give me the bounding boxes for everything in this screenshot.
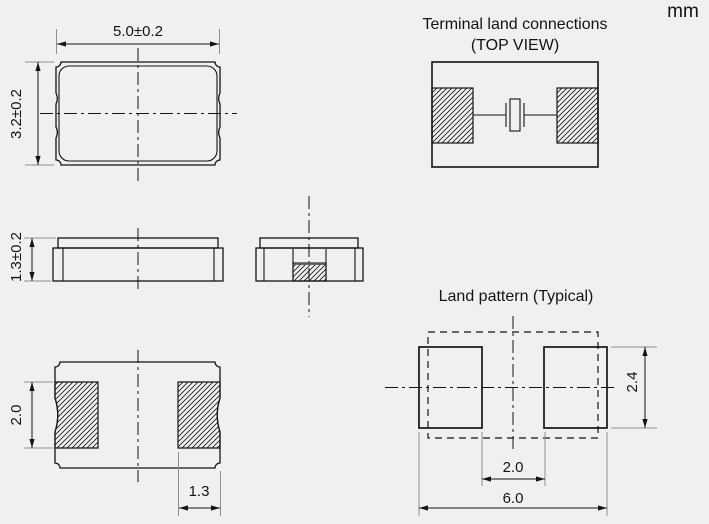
arrowhead-down	[642, 419, 647, 428]
bottom-view-pad-right	[178, 382, 220, 448]
tlc-terminal-pad-left	[432, 88, 473, 143]
arrowhead-up	[642, 347, 647, 356]
arrowhead-right	[211, 505, 220, 510]
tlc-terminal-pad-right	[557, 88, 598, 143]
terminal-land-connections-subtitle: (TOP VIEW)	[471, 37, 559, 54]
bottom-view-pad-width-dim-label: 1.3	[189, 483, 210, 500]
bottom-view-pad-length-dim-label: 2.0	[8, 405, 25, 426]
end-view-terminal-pad	[293, 263, 326, 281]
arrowhead-up	[29, 238, 34, 247]
arrowhead-down	[29, 439, 34, 448]
arrowhead-left	[419, 505, 428, 510]
arrowhead-up	[29, 382, 34, 391]
terminal-land-connections: Terminal land connections (TOP VIEW)	[423, 16, 608, 167]
bottom-view-pad-width-dimension: 1.3	[179, 452, 221, 516]
bottom-view-pad-left	[55, 382, 98, 448]
top-view-width-dim-label: 5.0±0.2	[113, 23, 163, 40]
arrowhead-left	[482, 476, 491, 481]
side-view-thickness-dimension: 1.3±0.2	[8, 232, 56, 282]
arrowhead-right	[210, 41, 219, 46]
land-pattern-overall-width-dim-label: 6.0	[503, 490, 524, 507]
side-view-thickness-dim-label: 1.3±0.2	[8, 232, 25, 282]
arrowhead-right	[598, 505, 607, 510]
side-view: 1.3±0.2	[8, 228, 223, 293]
arrowhead-left	[179, 505, 188, 510]
end-view	[256, 196, 363, 317]
bottom-view-pad-length-dimension: 2.0	[8, 382, 53, 448]
land-pattern-pad-height-dim-label: 2.4	[624, 372, 641, 393]
top-view: 5.0±0.2 3.2±0.2	[8, 23, 237, 181]
arrowhead-down	[29, 272, 34, 281]
land-pattern-title: Land pattern (Typical)	[439, 288, 594, 305]
arrowhead-down	[35, 156, 40, 165]
technical-drawing-page: 5.0±0.2 3.2±0.2 1.3±0.2	[0, 0, 709, 524]
land-pattern: Land pattern (Typical) 2.4 2.0	[385, 288, 657, 516]
land-pattern-pad-height-dimension: 2.4	[611, 347, 657, 428]
arrowhead-up	[35, 62, 40, 71]
crystal-body	[510, 99, 520, 131]
units-label: mm	[667, 1, 699, 22]
arrowhead-right	[536, 476, 545, 481]
technical-drawing-svg: 5.0±0.2 3.2±0.2 1.3±0.2	[0, 0, 709, 524]
top-view-height-dim-label: 3.2±0.2	[8, 89, 25, 139]
terminal-land-connections-title: Terminal land connections	[423, 16, 608, 33]
crystal-symbol	[473, 99, 557, 131]
arrowhead-left	[57, 41, 66, 46]
land-pattern-pad-gap-dim-label: 2.0	[503, 459, 524, 476]
bottom-view: 2.0 1.3	[8, 350, 221, 516]
